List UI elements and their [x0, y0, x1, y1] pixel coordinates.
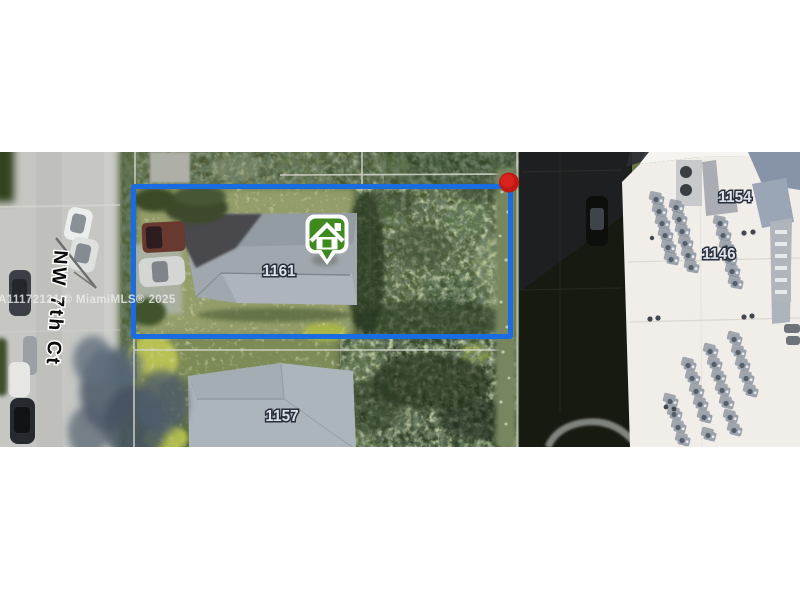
svg-text:1146: 1146	[702, 246, 735, 263]
svg-text:A11172121 © MiamiMLS® 2025: A11172121 © MiamiMLS® 2025	[0, 293, 176, 306]
svg-text:1157: 1157	[265, 408, 298, 425]
svg-text:1154: 1154	[718, 189, 752, 206]
svg-text:1161: 1161	[262, 263, 296, 280]
